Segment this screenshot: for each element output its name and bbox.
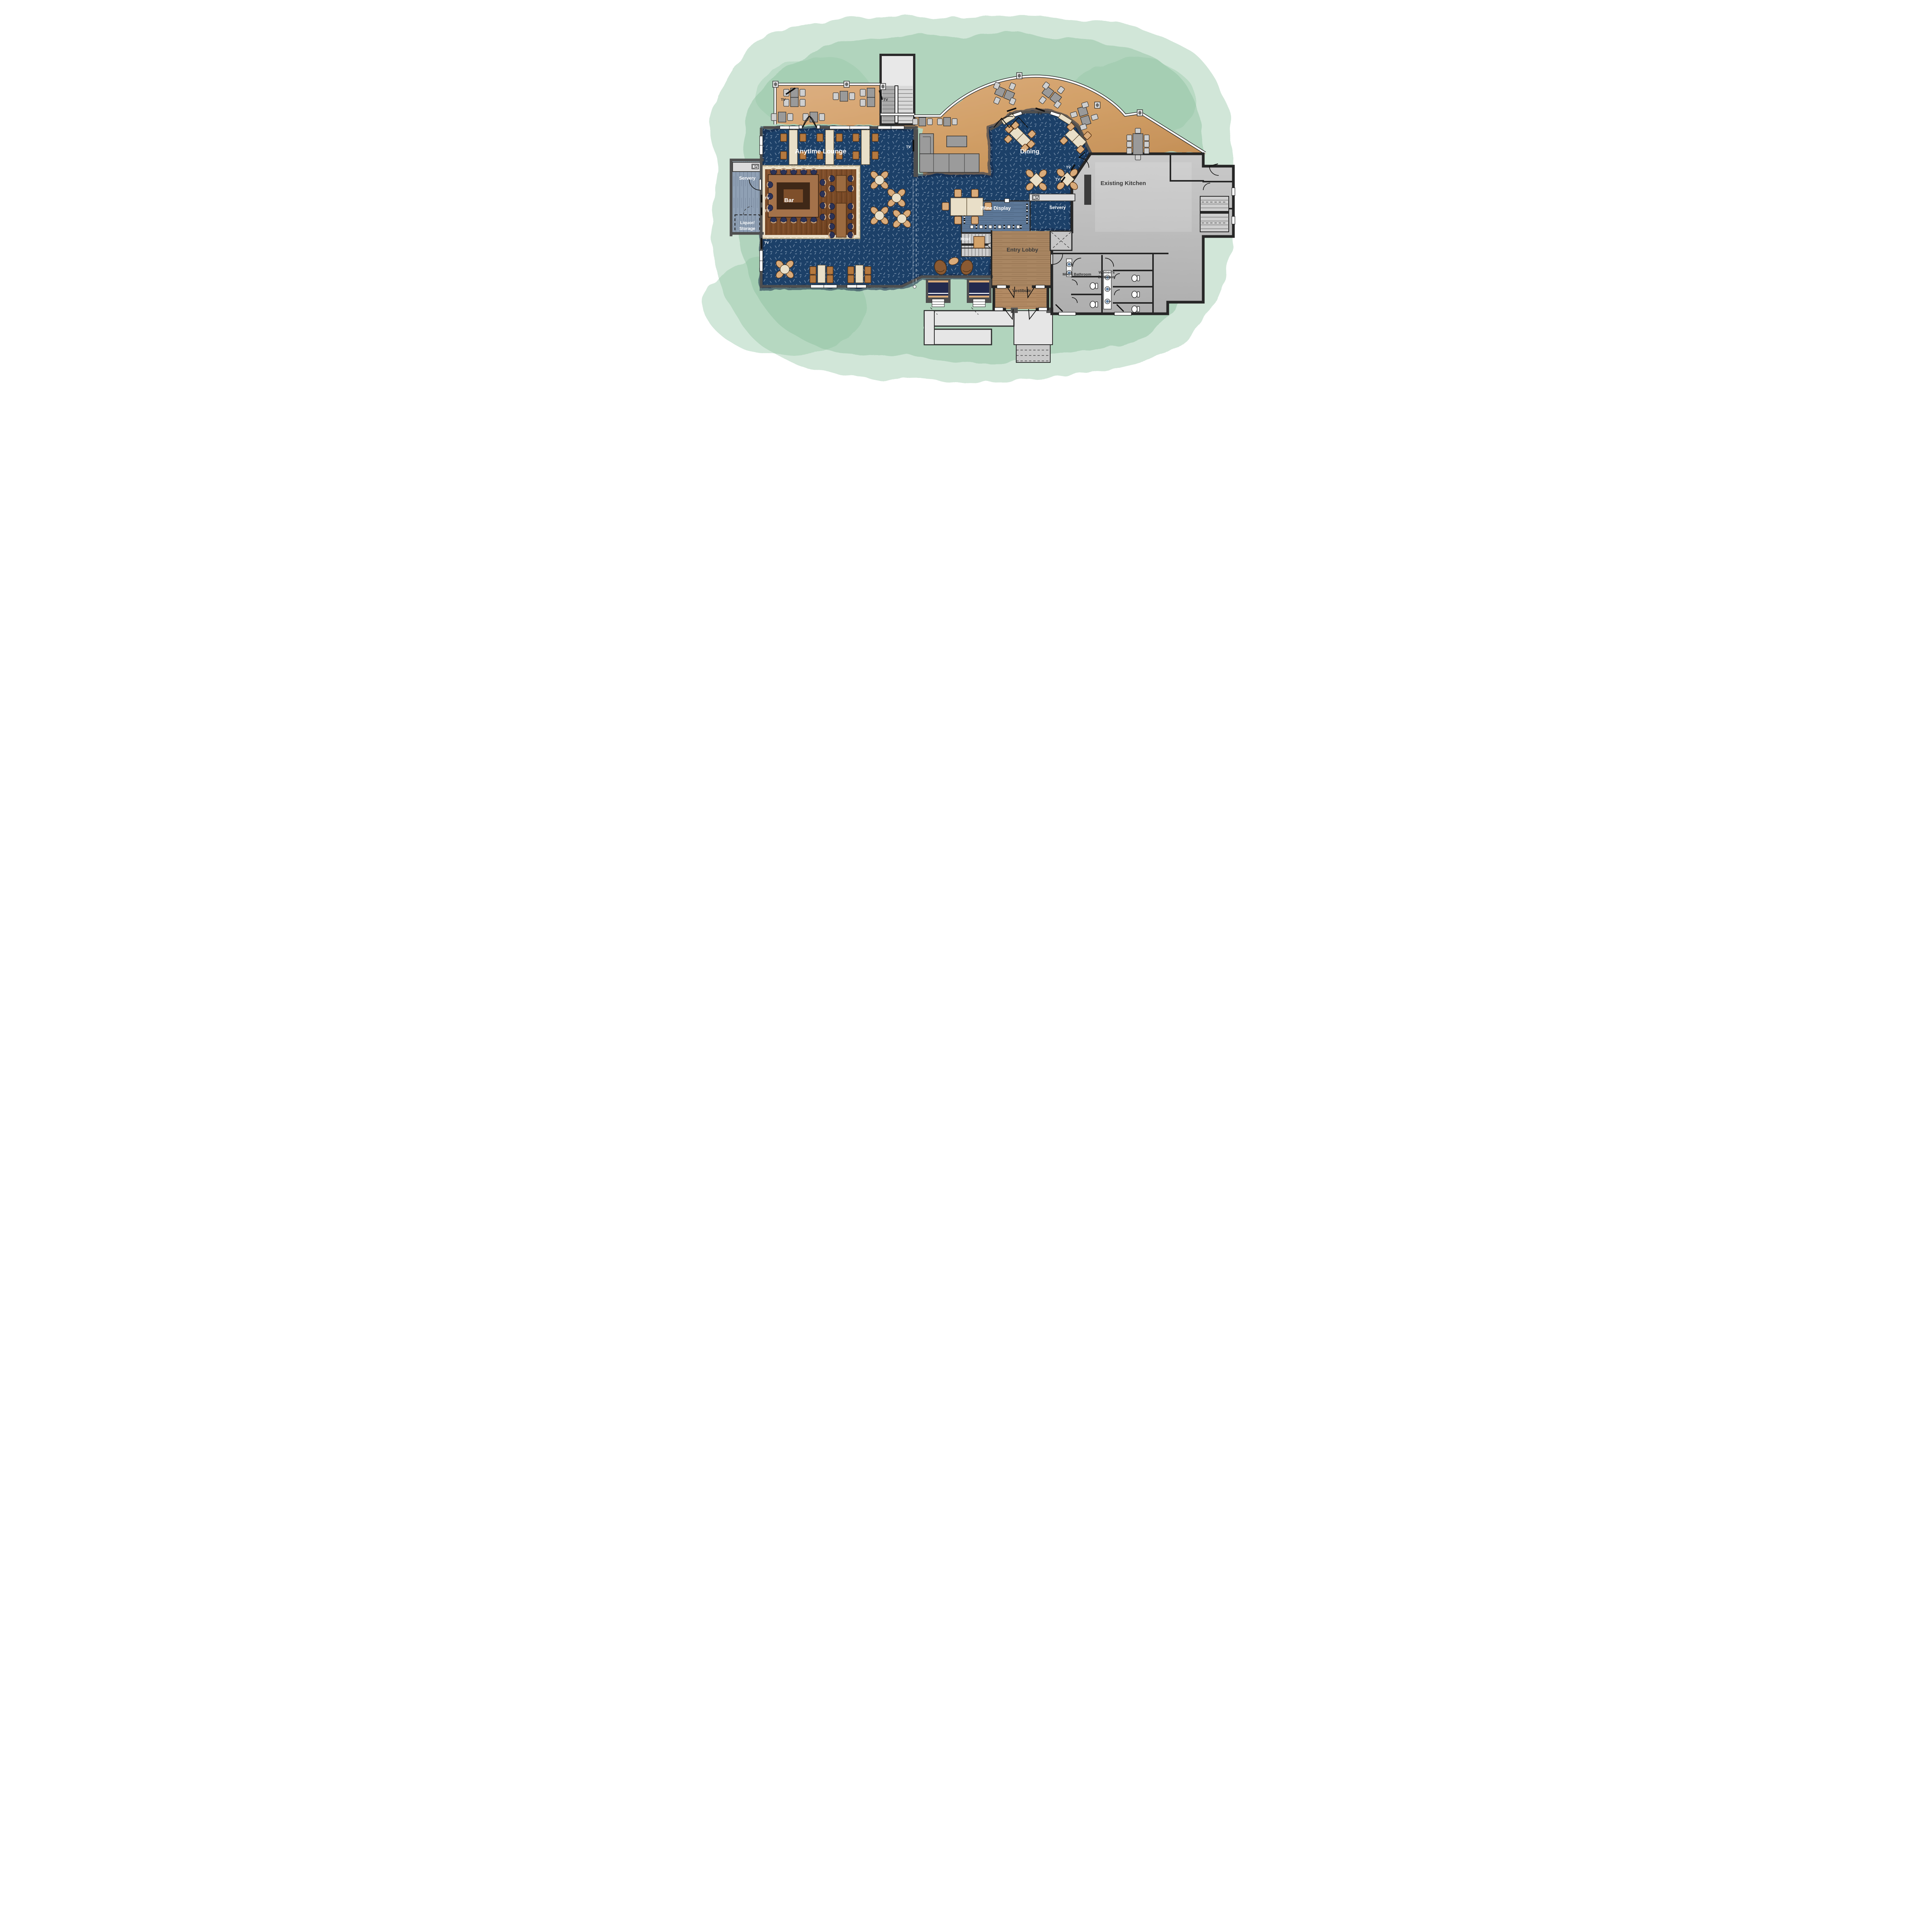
outdoor-table-set [771,112,793,122]
label-tv-4: TV [1009,112,1014,116]
label-tv-3: TV [906,145,911,149]
pos-terminal-icon [752,164,759,169]
label-anytime-lounge: Anytime Lounge [795,148,846,155]
entry-steps [1016,345,1050,362]
entry-lobby-floor [992,231,1052,309]
label-vestibule: Vestibule [1012,289,1031,293]
entry-pier [1011,308,1018,313]
label-tv-10: TV [764,241,769,245]
terrace-column [1017,73,1022,79]
label-tv-9: TV [765,209,770,213]
label-servery-right: Servery [1049,206,1066,210]
pos-terminal-icon [1032,195,1039,200]
rect-table-set [810,265,833,283]
label-tv-1: TV [781,98,786,102]
label-entry-lobby: Entry Lobby [1007,247,1038,253]
label-bar: Bar [784,197,794,204]
bar-area [761,165,860,239]
label-tv-8: TV [765,196,770,201]
terrace-column [1095,102,1100,108]
rect-table-set [848,265,871,283]
label-tv-5: TV [1037,112,1043,116]
terrace-column [1137,110,1143,116]
floor-plan-canvas: Anytime LoungeServeryBarLiquor/StorageDi… [685,0,1247,394]
coffee-table [947,136,967,147]
label-womens-bathroom: Women'sBathroom [1098,270,1116,279]
outdoor-table-set [833,91,855,101]
label-tv-2: TV [883,98,888,102]
label-dining: Dining [1020,148,1039,155]
floor-plan-page: Anytime LoungeServeryBarLiquor/StorageDi… [685,0,1247,394]
label-servery-left: Servery [739,176,756,181]
host-stand [974,236,985,248]
label-wine-display: Wine Display [981,206,1011,211]
kitchen-equipment [1084,175,1091,205]
terrace-column [773,81,778,87]
outdoor-table-set [937,117,957,126]
terrace-column [844,81,849,87]
label-tv-6: TV [1066,165,1071,170]
label-host: Host [961,237,970,241]
terrace-column [880,83,886,90]
label-mens-bathroom: Men's Bathroom [1063,272,1091,277]
kitchen-stair-wing [1200,196,1229,232]
outdoor-table-set [913,117,932,126]
label-existing-kitchen: Existing Kitchen [1100,180,1146,187]
label-tv-7: TV [1055,177,1060,182]
